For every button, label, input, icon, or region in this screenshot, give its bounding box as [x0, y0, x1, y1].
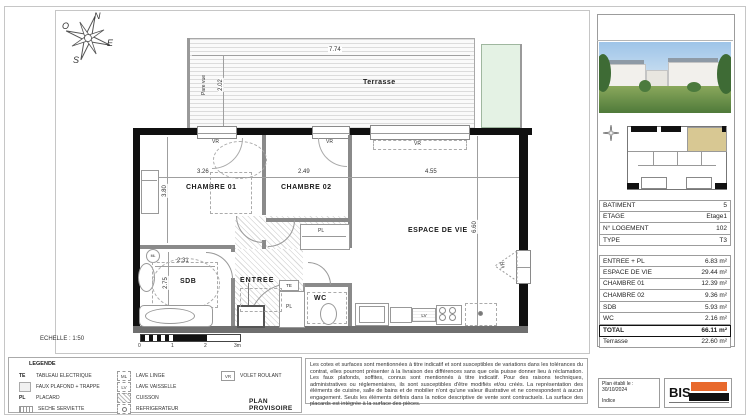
row-label: ENTREE + PL	[603, 258, 645, 265]
legend-label: LAVE VAISSELLE	[136, 384, 176, 390]
plan-indice-label: Indice	[602, 398, 656, 404]
legend-label: LAVE LINGE	[136, 373, 165, 379]
row-value: 29.44 m²	[701, 269, 727, 276]
table-row: ESPACE DE VIE29.44 m²	[599, 267, 731, 279]
table-row: WC2.16 m²	[599, 313, 731, 325]
row-value: 5.93 m²	[705, 304, 727, 311]
locator-line	[677, 151, 678, 165]
closet-rail	[302, 236, 346, 237]
legend-item: SECHE SERVIETTE	[19, 404, 100, 414]
floor-plan-sheet: N O E S Terrasse 7.74 2.02 Pare vue VR V…	[0, 0, 750, 420]
table-row: CHAMBRE 029.36 m²	[599, 290, 731, 302]
towel-radiator-symbol	[19, 406, 33, 413]
locator-line	[638, 165, 716, 166]
legend-label: FAUX PLAFOND + TRAPPE	[36, 384, 100, 390]
wall-west	[133, 128, 140, 332]
window-bay-vr-tag: VR	[414, 141, 421, 147]
row-value: 102	[716, 225, 727, 232]
disclaimer-box: Les cotes et surfaces sont mentionnées à…	[305, 358, 588, 404]
row-label: TOTAL	[603, 327, 624, 334]
cooktop-burner	[449, 307, 456, 314]
side-panel-header	[597, 14, 733, 41]
row-label: WC	[603, 315, 614, 322]
washing-machine-icon: ML	[146, 249, 160, 263]
table-row: CHAMBRE 0112.39 m²	[599, 279, 731, 291]
legend-item: CUISSON	[117, 393, 178, 403]
project-photo	[599, 42, 731, 113]
row-value: Etage1	[706, 213, 727, 220]
chambre1-width-dim: 3.26	[196, 169, 210, 175]
photo-lawn	[599, 86, 731, 113]
compass-s: S	[73, 55, 79, 65]
row-label: SDB	[603, 304, 616, 311]
pare-vue-label: Pare vue	[201, 75, 207, 95]
te-symbol: TE	[19, 373, 31, 379]
dim-line-horizontal	[141, 177, 519, 178]
living-width-dim: 4.55	[424, 169, 438, 175]
table-row: ETAGEEtage1	[599, 212, 731, 224]
chambre2-width-dim: 2.49	[297, 169, 311, 175]
scale-bar	[140, 334, 241, 342]
locator-wall	[661, 126, 681, 132]
terrace-depth-dim: 2.02	[218, 78, 224, 92]
living-depth-dim: 6.60	[472, 220, 478, 234]
cooktop-burner	[449, 314, 456, 321]
legend-label: CUISSON	[136, 395, 159, 401]
scale-text: ECHELLE : 1:50	[40, 336, 84, 342]
cuisson-symbol	[117, 393, 131, 403]
terrace-label: Terrasse	[363, 79, 396, 86]
electrical-panel-icon: TE	[279, 280, 299, 291]
chambre1-depth-dim: 3.80	[162, 184, 168, 198]
turning-circle-chambre1	[213, 141, 267, 179]
row-label: BATIMENT	[603, 202, 635, 209]
row-value: T3	[719, 237, 727, 244]
bathtub-basin	[145, 308, 195, 324]
locator-line	[701, 151, 702, 165]
locator-balcony	[686, 177, 712, 189]
window-bay-living	[370, 125, 470, 140]
scale-tick-1: 1	[171, 343, 174, 349]
locator-line	[653, 151, 654, 165]
legend-item: REFRIGERATEUR	[117, 404, 178, 414]
table-row: N° LOGEMENT102	[599, 223, 731, 235]
refrigerateur-symbol	[117, 404, 131, 414]
faux-plafond-symbol	[19, 382, 31, 392]
locator-plan	[627, 126, 727, 190]
window-east-vr-tag: VR	[500, 262, 506, 269]
cupboard-pl-tag: PL	[286, 304, 292, 310]
terrace-screen-wall	[187, 38, 190, 128]
row-label: TYPE	[603, 237, 620, 244]
scale-seg-white	[207, 335, 240, 341]
logo-black-bar	[689, 393, 729, 401]
closet-pl-tag: PL	[318, 228, 324, 234]
compass-e: E	[107, 38, 114, 48]
legend-title: LEGENDE	[29, 361, 56, 367]
compass-o: O	[62, 21, 69, 31]
table-row-terrasse: Terrasse22.60 m²	[599, 337, 731, 349]
terrace-width-dim: 7.74	[328, 47, 342, 53]
legend-item: MLLAVE LINGE	[117, 371, 178, 381]
terrace-dim-line	[192, 55, 470, 56]
bed-icon	[141, 170, 159, 214]
row-label: CHAMBRE 02	[603, 292, 645, 299]
faux-plafond-sdb	[152, 262, 218, 308]
row-label: ETAGE	[603, 213, 625, 220]
legend-item: FAUX PLAFOND + TRAPPE	[19, 382, 100, 392]
partition-ch1-ch2-upper	[262, 135, 266, 215]
photo-bush	[639, 80, 651, 92]
table-row: TYPET3	[599, 235, 731, 247]
locator-wall	[627, 183, 639, 189]
legend-label: VOLET ROULANT	[240, 373, 282, 379]
entree-label: ENTREE	[240, 277, 274, 284]
row-value: 22.60 m²	[701, 338, 727, 345]
window-living-east	[516, 250, 531, 284]
scale-seg-dashed	[141, 335, 174, 341]
fridge-dot	[478, 311, 483, 316]
logo-box: BIS	[664, 378, 732, 408]
row-value: 2.16 m²	[705, 315, 727, 322]
locator-wall	[715, 183, 727, 189]
row-label: ESPACE DE VIE	[603, 269, 652, 276]
legend-label: SECHE SERVIETTE	[38, 406, 84, 412]
living-label: ESPACE DE VIE	[408, 227, 468, 234]
legend-box: LEGENDE TETABLEAU ELECTRIQUE FAUX PLAFON…	[8, 357, 302, 413]
locator-wall	[631, 126, 657, 132]
chambre2-label: CHAMBRE 02	[281, 184, 332, 191]
table-row-total: TOTAL66.11 m²	[599, 325, 731, 337]
legend-item: TETABLEAU ELECTRIQUE	[19, 371, 100, 381]
toilet-icon	[320, 303, 337, 325]
locator-balcony	[641, 177, 667, 189]
legend-item: PLPLACARD	[19, 393, 100, 403]
wall-south	[133, 326, 528, 333]
dishwasher-icon: LV	[412, 308, 436, 322]
table-row: BATIMENT5	[599, 200, 731, 212]
scale-tick-0: 0	[138, 343, 141, 349]
legend-label: TABLEAU ELECTRIQUE	[36, 373, 92, 379]
cooktop-burner	[439, 307, 446, 314]
kitchen-sink-icon	[390, 307, 412, 323]
lave-vaisselle-symbol: LV	[117, 382, 131, 392]
disclaimer-text: Les cotes et surfaces sont mentionnées à…	[310, 362, 583, 408]
lave-linge-symbol: ML	[117, 371, 131, 381]
summary-table: BATIMENT5 ETAGEEtage1 N° LOGEMENT102 TYP…	[599, 200, 731, 348]
table-row: ENTREE + PL6.83 m²	[599, 255, 731, 267]
row-label: CHAMBRE 01	[603, 280, 645, 287]
locator-wall	[722, 126, 726, 132]
wall-east	[519, 133, 528, 333]
row-value: 66.11 m²	[701, 327, 727, 334]
legend-item: LVLAVE VAISSELLE	[117, 382, 178, 392]
compass-rose: N O E S	[60, 10, 116, 66]
photo-bush	[687, 82, 701, 92]
plan-date-value: 30/10/2024	[602, 387, 656, 393]
photo-tree	[717, 54, 731, 94]
cooktop-burner	[439, 314, 446, 321]
scale-tick-2: 2	[204, 343, 207, 349]
terrace-planter	[481, 44, 521, 128]
pl-symbol: PL	[19, 395, 31, 401]
plan-info-box: Plan établi le : 30/10/2024 Indice	[598, 378, 660, 408]
row-value: 12.39 m²	[701, 280, 727, 287]
bed-pillow-line	[141, 180, 157, 181]
row-value: 9.36 m²	[705, 292, 727, 299]
logo-text: BIS	[669, 385, 689, 401]
row-label: N° LOGEMENT	[603, 225, 649, 232]
row-value: 6.83 m²	[705, 258, 727, 265]
faux-plafond-entree	[240, 288, 282, 312]
scale-tick-3: 3m	[234, 343, 241, 349]
terrace-right-edge	[520, 44, 522, 128]
closet-chambre2	[300, 224, 350, 250]
plan-provisoire-label: PLAN PROVISOIRE	[249, 398, 301, 412]
volet-roulant-symbol: VR	[221, 371, 235, 381]
row-value: 5	[723, 202, 727, 209]
logo-tagline-line	[669, 402, 729, 403]
table-spacer	[599, 246, 731, 255]
locator-highlighted-unit	[687, 127, 727, 152]
compass-n: N	[94, 11, 101, 21]
logo-orange-bar	[691, 382, 727, 391]
legend-label: PLACARD	[36, 395, 60, 401]
row-label: Terrasse	[603, 338, 628, 345]
scale-seg-black	[174, 335, 207, 341]
locator-compass-icon	[602, 124, 620, 142]
legend-item: VRVOLET ROULANT	[221, 371, 282, 381]
oven-inner	[359, 306, 385, 323]
legend-label: REFRIGERATEUR	[136, 406, 178, 412]
partition-wc-living	[348, 283, 352, 326]
table-row: SDB5.93 m²	[599, 302, 731, 314]
